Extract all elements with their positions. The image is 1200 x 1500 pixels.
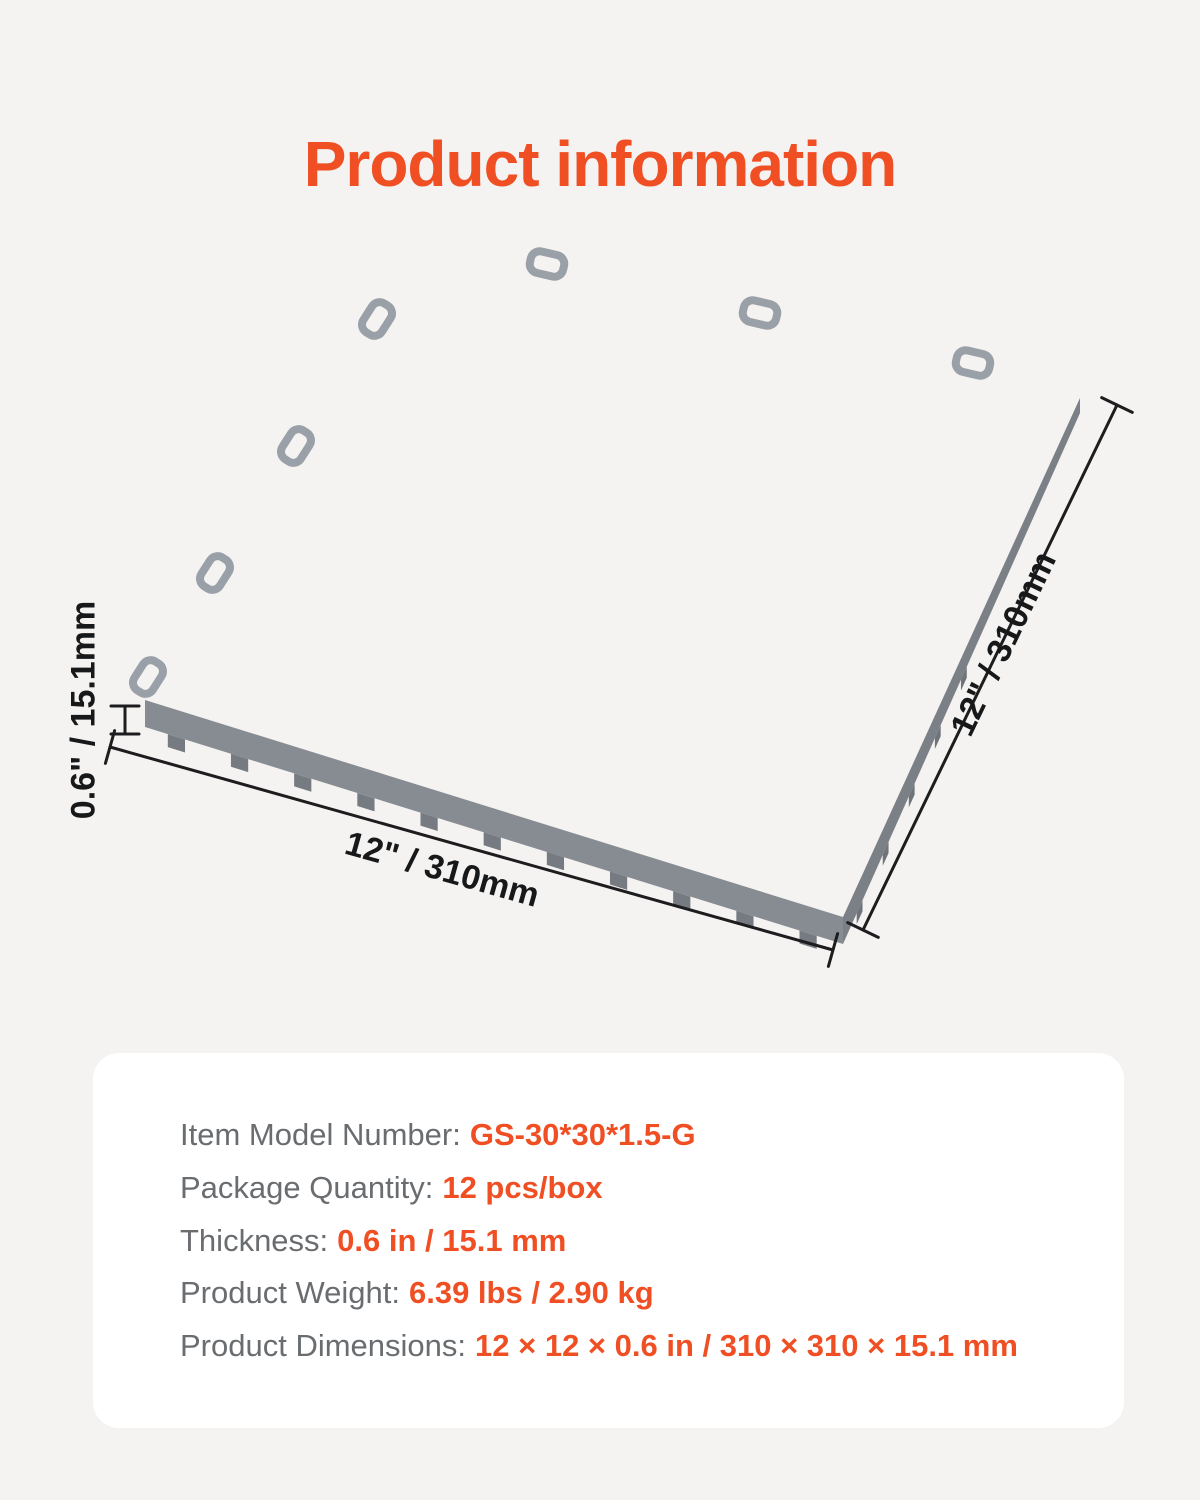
connector-loop	[359, 299, 396, 339]
rib	[145, 248, 1080, 917]
rib	[219, 296, 1004, 856]
tile-foot	[935, 725, 941, 749]
rib	[145, 248, 1080, 917]
rib	[145, 248, 1080, 917]
rib	[421, 414, 813, 692]
rib	[145, 248, 1080, 917]
spec-row-quantity: Package Quantity:12 pcs/box	[180, 1170, 1084, 1206]
tile-surface-pattern	[145, 248, 1080, 917]
dimension-label-bottom: 12" / 310mm	[341, 824, 544, 916]
tile-foot	[420, 813, 437, 831]
rib	[302, 340, 929, 786]
spec-row-dimensions: Product Dimensions:12 × 12 × 0.6 in / 31…	[180, 1328, 1084, 1364]
rib	[145, 248, 1080, 917]
rib	[145, 248, 1080, 917]
rib	[501, 463, 736, 629]
rib	[458, 444, 772, 667]
tile-foot	[357, 793, 374, 811]
tile-foot	[673, 891, 690, 909]
rib	[282, 328, 949, 802]
rib	[379, 393, 850, 728]
rib	[145, 248, 1080, 917]
rib	[145, 248, 1080, 917]
page-title: Product information	[0, 127, 1200, 201]
connector-loop	[130, 657, 167, 697]
tile-seam-diagonal-2	[145, 248, 1080, 917]
tile-side-wall-right	[843, 398, 1080, 944]
rib	[580, 517, 658, 572]
connector-loop	[278, 426, 315, 466]
spec-value: 6.39 lbs / 2.90 kg	[409, 1275, 654, 1310]
rib	[145, 248, 1080, 917]
dimension-label-right: 12" / 310mm	[943, 546, 1065, 743]
rib	[145, 248, 1080, 917]
rib	[145, 248, 1080, 917]
rib	[145, 248, 1080, 917]
spec-label: Thickness:	[180, 1223, 328, 1258]
rib	[145, 248, 1080, 917]
rib	[145, 248, 1080, 917]
rib	[299, 343, 927, 790]
tile-foot	[231, 754, 248, 772]
rivet	[431, 599, 448, 611]
tile-rim	[156, 254, 1070, 908]
rib	[576, 524, 654, 580]
rib	[145, 248, 1080, 917]
rib	[304, 337, 931, 782]
rib	[145, 248, 1080, 917]
rib	[145, 248, 1080, 917]
rib	[361, 377, 871, 739]
rib	[145, 248, 1080, 917]
rib	[145, 248, 1080, 917]
rib	[145, 248, 1080, 917]
rib	[184, 266, 1046, 881]
spec-value: 12 pcs/box	[442, 1170, 602, 1205]
tile-center-dot	[606, 539, 630, 556]
rib	[145, 248, 1080, 917]
tile-foot	[883, 842, 889, 866]
tile-foot	[484, 832, 501, 850]
rib	[480, 453, 754, 647]
rib	[500, 466, 735, 633]
tile-center-block	[590, 528, 644, 566]
rib	[145, 248, 1080, 917]
rib	[145, 248, 1080, 917]
tile-foot	[547, 852, 564, 870]
spec-value: 0.6 in / 15.1 mm	[337, 1223, 566, 1258]
connector-loop	[528, 249, 566, 278]
rib	[259, 319, 965, 823]
tile-foot	[736, 911, 753, 929]
rib	[541, 490, 698, 601]
spec-row-thickness: Thickness:0.6 in / 15.1 mm	[180, 1223, 1084, 1259]
connector-loop	[197, 553, 234, 593]
rib	[145, 248, 1080, 917]
spec-label: Package Quantity:	[180, 1170, 433, 1205]
rib	[145, 248, 1080, 917]
rib	[145, 248, 1080, 917]
spec-row-weight: Product Weight:6.39 lbs / 2.90 kg	[180, 1275, 1084, 1311]
spec-label: Product Dimensions:	[180, 1328, 466, 1363]
rib	[145, 248, 1080, 917]
rib	[145, 248, 1080, 917]
spec-label: Item Model Number:	[180, 1117, 461, 1152]
rib	[264, 313, 969, 815]
rib	[519, 479, 715, 618]
dimension-line-bottom	[105, 731, 837, 967]
rib	[423, 412, 815, 690]
rib	[462, 437, 775, 659]
rib	[341, 364, 890, 754]
tile-illustration	[145, 248, 1080, 917]
page: { "title": "Product information", "accen…	[0, 0, 1200, 1500]
rib	[145, 248, 1080, 916]
rib	[497, 470, 732, 637]
rib	[539, 493, 696, 604]
rib	[145, 248, 1080, 917]
rib	[145, 248, 1080, 917]
rib	[145, 248, 1080, 917]
rib	[418, 418, 810, 697]
rib	[145, 248, 1080, 917]
spec-row-model: Item Model Number:GS-30*30*1.5-G	[180, 1117, 1084, 1153]
rib	[145, 250, 1080, 917]
rib	[145, 248, 1080, 917]
tile-rim-inner-line	[176, 266, 1051, 891]
rib	[145, 248, 1080, 917]
rib	[162, 258, 1064, 903]
rivet	[787, 484, 803, 495]
rib	[578, 520, 656, 575]
rib	[145, 248, 1080, 917]
dimension-label-thickness: 0.6" / 15.1mm	[65, 601, 104, 819]
rib	[262, 316, 968, 819]
spec-label: Product Weight:	[180, 1275, 400, 1310]
rib	[145, 248, 1080, 917]
rib	[145, 248, 1080, 917]
rib	[598, 534, 637, 562]
tile-foot	[800, 930, 817, 948]
rib	[145, 248, 1080, 917]
rib	[145, 248, 1080, 917]
spec-card: Item Model Number:GS-30*30*1.5-G Package…	[93, 1053, 1124, 1428]
rib	[242, 304, 987, 835]
spec-value: 12 × 12 × 0.6 in / 310 × 310 × 15.1 mm	[475, 1328, 1018, 1363]
rib	[381, 389, 851, 723]
spec-value: GS-30*30*1.5-G	[470, 1117, 696, 1152]
rib	[322, 352, 910, 770]
dimension-marker-thickness	[111, 706, 139, 734]
tile-foot	[294, 773, 311, 791]
tile-seam-diagonal-1	[145, 248, 1080, 917]
rib	[343, 362, 891, 751]
tile-foot	[909, 784, 915, 808]
rib	[145, 248, 1080, 917]
tile-foot	[857, 900, 863, 924]
rib	[145, 248, 1080, 917]
rivet	[689, 672, 706, 685]
rib	[145, 248, 1080, 917]
rib	[460, 440, 774, 662]
rib	[537, 497, 694, 608]
rib	[145, 248, 1080, 917]
rib	[222, 292, 1006, 851]
tile-foot	[610, 872, 627, 890]
rib	[224, 290, 1008, 848]
rib	[145, 248, 1080, 917]
rib	[182, 269, 1045, 885]
rib	[339, 368, 888, 759]
connector-loop	[741, 298, 779, 327]
rib	[145, 248, 1080, 917]
tile-side-wall-left	[145, 700, 843, 944]
rib	[145, 248, 1080, 917]
connector-loop	[954, 348, 992, 377]
tile-foot	[168, 734, 185, 752]
rib	[179, 272, 1042, 890]
rib	[440, 427, 793, 677]
rib	[559, 506, 677, 589]
rib	[202, 281, 1025, 869]
rivet	[536, 421, 552, 432]
concentric-rib-rings	[145, 248, 1080, 917]
rib	[383, 386, 853, 719]
rib	[401, 402, 832, 708]
